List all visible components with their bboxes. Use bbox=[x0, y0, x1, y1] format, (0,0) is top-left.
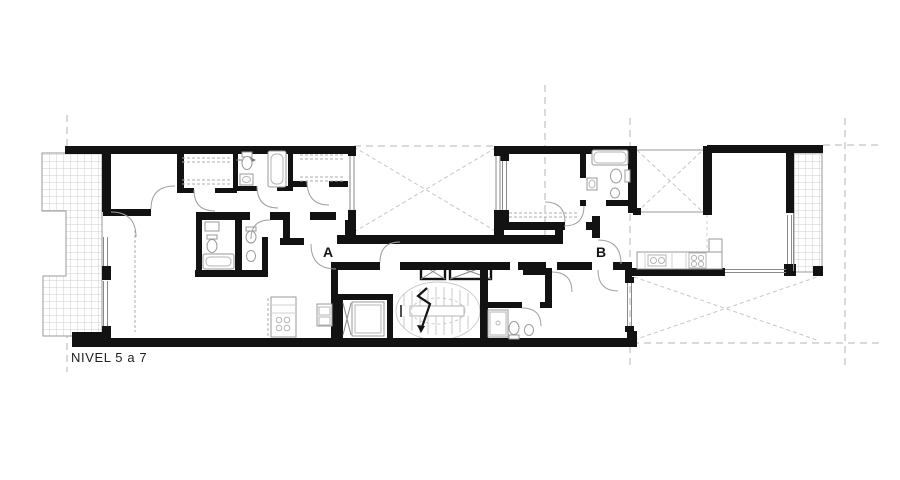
void-lightwell-unit-b bbox=[637, 150, 707, 252]
toilet-symbol bbox=[246, 227, 256, 231]
sink-symbol bbox=[240, 174, 253, 185]
appliance-symbol bbox=[709, 239, 722, 252]
stair-core bbox=[396, 282, 480, 340]
void-terrace-bottom-right bbox=[634, 277, 817, 340]
void-lightwell-center bbox=[354, 146, 497, 232]
kitchen-island-symbol bbox=[271, 297, 296, 337]
floor-plan-drawing: A B NIVEL 5 a 7 bbox=[0, 0, 900, 480]
bidet-symbol bbox=[247, 251, 256, 262]
sink-symbol bbox=[205, 222, 219, 231]
bathroom-b2-fixtures bbox=[488, 310, 534, 339]
bathroom-a2-fixtures bbox=[203, 222, 234, 269]
bathroom-b1-fixtures bbox=[587, 150, 630, 198]
bathroom-a3-fixtures bbox=[246, 227, 256, 262]
toilet-symbol bbox=[625, 170, 630, 182]
kitchen-a bbox=[271, 297, 332, 337]
bidet-symbol bbox=[611, 188, 620, 198]
kitchen-b bbox=[637, 239, 722, 269]
bathroom-a1-fixtures bbox=[240, 151, 286, 187]
stair-arrow-head bbox=[417, 325, 425, 333]
reference-grid-lines bbox=[67, 85, 882, 372]
unit-a-label: A bbox=[323, 244, 333, 260]
bathtub-symbol bbox=[203, 254, 234, 269]
floor-plan-canvas: A B NIVEL 5 a 7 bbox=[0, 0, 900, 480]
toilet-symbol bbox=[207, 235, 217, 239]
toilet-symbol bbox=[509, 335, 519, 339]
shower-symbol bbox=[488, 310, 508, 337]
elevator-shaft bbox=[337, 294, 393, 338]
stair-treads bbox=[404, 287, 468, 335]
bidet-symbol bbox=[525, 325, 534, 336]
balcony-left bbox=[42, 153, 102, 336]
unit-b-label: B bbox=[596, 244, 606, 260]
level-label: NIVEL 5 a 7 bbox=[71, 350, 147, 365]
balcony-right bbox=[794, 153, 822, 272]
